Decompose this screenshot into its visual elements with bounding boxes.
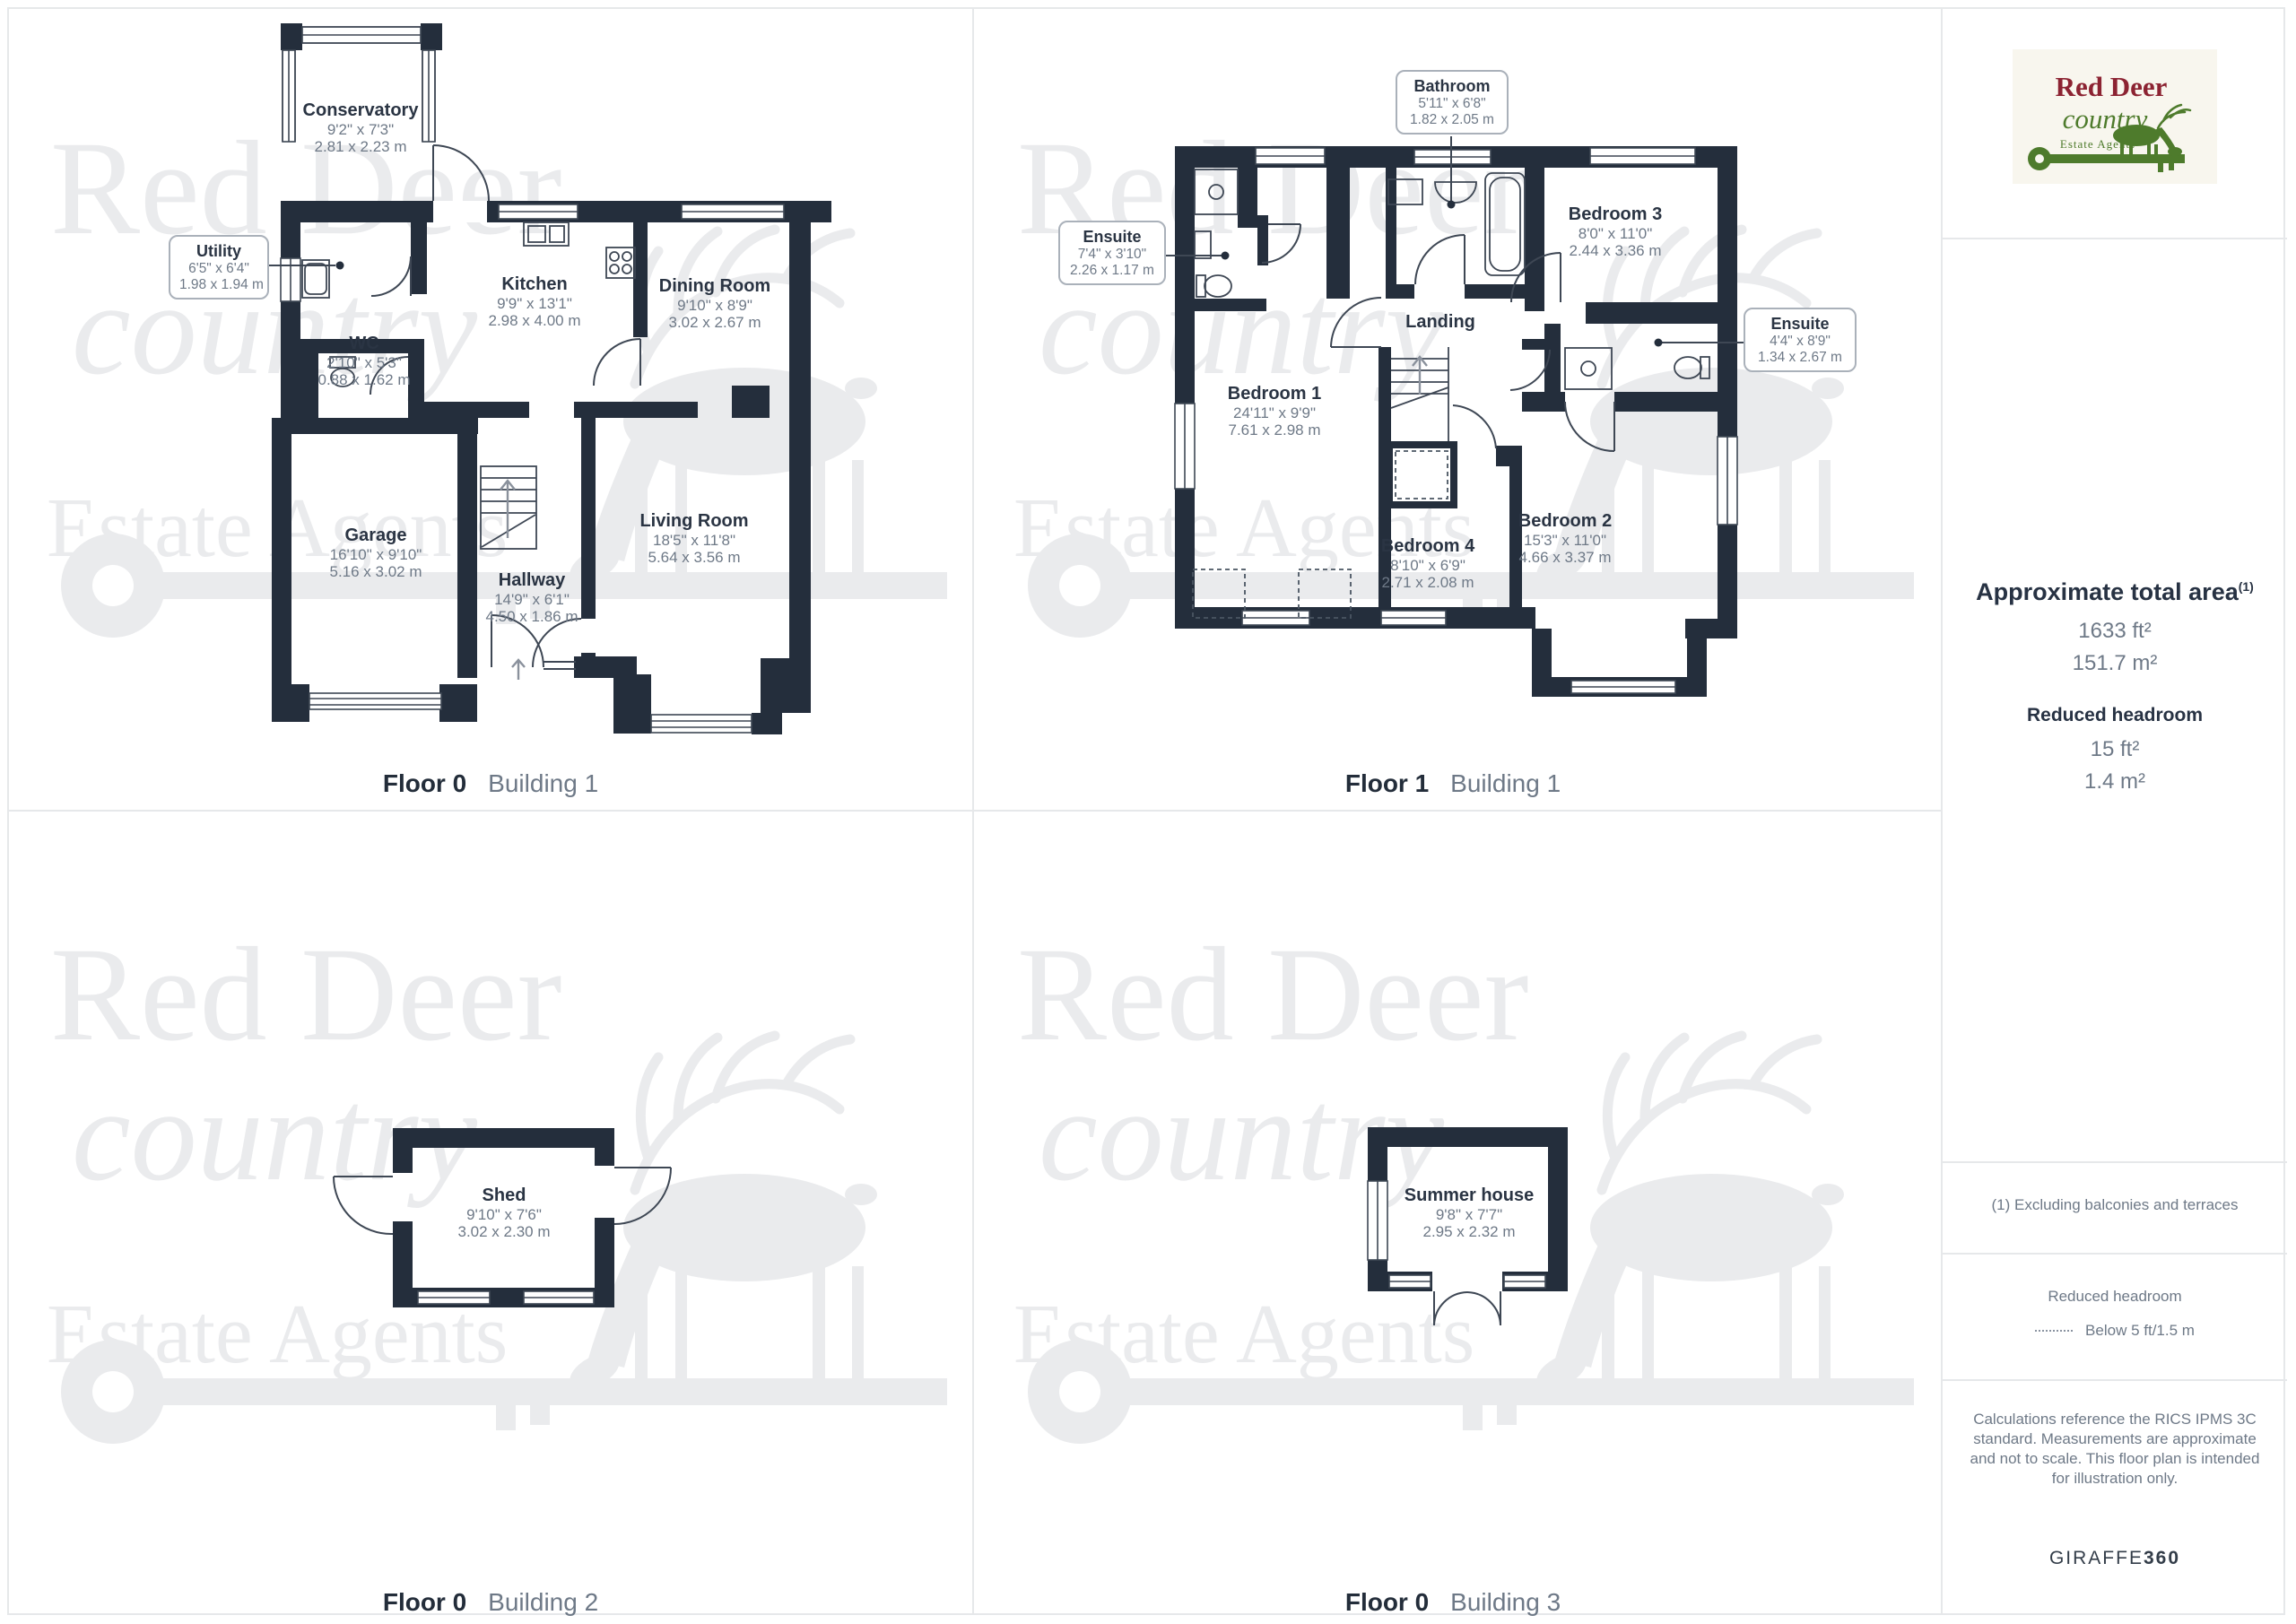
total-area-title-text: Approximate total area: [1976, 578, 2239, 605]
room-dim-metric: 4.66 x 3.37 m: [1518, 549, 1612, 566]
room-dim-imperial: 15'3" x 11'0": [1518, 532, 1612, 549]
caption-building: Building 1: [488, 769, 598, 798]
reduced-headroom-title: Reduced headroom: [1943, 705, 2287, 726]
room-name: Living Room: [639, 511, 748, 532]
room-label-wc: WC 2'10" x 5'3" 0.88 x 1.62 m: [317, 334, 410, 388]
caption-building: Building 1: [1450, 769, 1561, 798]
room-dim-imperial: 16'10" x 9'10": [329, 546, 422, 563]
room-dim-metric: 5.64 x 3.56 m: [639, 549, 748, 566]
room-label-hallway: Hallway 14'9" x 6'1" 4.50 x 1.86 m: [485, 570, 578, 625]
room-dim-imperial: 2'10" x 5'3": [317, 354, 410, 371]
room-dim-imperial: 9'10" x 8'9": [659, 297, 770, 314]
room-dim-metric: 2.81 x 2.23 m: [303, 138, 419, 155]
legend-row: Below 5 ft/1.5 m: [1943, 1322, 2287, 1340]
callout-ensuite-2: Ensuite 4'4" x 8'9" 1.34 x 2.67 m: [1744, 308, 1857, 372]
room-dim-metric: 2.95 x 2.32 m: [1405, 1223, 1534, 1240]
room-name: Bathroom: [1406, 76, 1498, 96]
sidebar-divider-2: [1943, 1161, 2287, 1163]
room-name: Utility: [179, 241, 258, 261]
legend-title: Reduced headroom: [1943, 1288, 2287, 1306]
room-name: Dining Room: [659, 276, 770, 297]
callout-ensuite-1: Ensuite 7'4" x 3'10" 2.26 x 1.17 m: [1058, 221, 1166, 285]
total-area-title: Approximate total area(1): [1943, 578, 2287, 606]
room-dim-metric: 5.16 x 3.02 m: [329, 563, 422, 580]
room-name: Bedroom 2: [1518, 511, 1612, 532]
room-dim-imperial: 5'11" x 6'8": [1406, 96, 1498, 112]
room-name: Ensuite: [1754, 314, 1846, 334]
room-name: Landing: [1405, 312, 1475, 333]
room-label-shed: Shed 9'10" x 7'6" 3.02 x 2.30 m: [457, 1185, 550, 1240]
room-name: Kitchen: [488, 274, 580, 295]
room-dim-metric: 2.98 x 4.00 m: [488, 312, 580, 329]
floorplan-page: Red Deer country Estate Agents: [0, 0, 2296, 1624]
room-dim-metric: 1.98 x 1.94 m: [179, 277, 258, 293]
room-dim-metric: 0.88 x 1.62 m: [317, 371, 410, 388]
caption-floor1-building1: Floor 1 Building 1: [1345, 769, 1561, 798]
room-dim-imperial: 14'9" x 6'1": [485, 591, 578, 608]
logo-key-icon: [2028, 147, 2185, 172]
sidebar-divider-4: [1943, 1379, 2287, 1381]
room-name: Ensuite: [1069, 227, 1155, 247]
room-dim-imperial: 9'8" x 7'7": [1405, 1206, 1534, 1223]
room-name: Summer house: [1405, 1185, 1534, 1206]
room-dim-metric: 2.26 x 1.17 m: [1069, 263, 1155, 279]
room-dim-imperial: 9'2" x 7'3": [303, 121, 419, 138]
room-name: Conservatory: [303, 100, 419, 121]
room-name: Bedroom 1: [1228, 384, 1321, 404]
caption-floor: Floor 0: [383, 769, 466, 798]
room-dim-metric: 1.34 x 2.67 m: [1754, 350, 1846, 366]
brand-name: GIRAFFE: [2049, 1548, 2144, 1568]
room-name: Shed: [457, 1185, 550, 1206]
room-dim-imperial: 8'10" x 6'9": [1381, 557, 1474, 574]
logo-text-red-deer: Red Deer: [2056, 71, 2168, 102]
room-dim-metric: 2.44 x 3.36 m: [1569, 242, 1662, 259]
caption-building: Building 3: [1450, 1588, 1561, 1617]
caption-floor0-building3: Floor 0 Building 3: [1345, 1588, 1561, 1617]
footnote: (1) Excluding balconies and terraces: [1943, 1196, 2287, 1214]
room-dim-imperial: 7'4" x 3'10": [1069, 247, 1155, 263]
room-dim-metric: 1.82 x 2.05 m: [1406, 112, 1498, 128]
caption-floor: Floor 0: [1345, 1588, 1429, 1617]
callout-utility: Utility 6'5" x 6'4" 1.98 x 1.94 m: [169, 235, 269, 300]
sidebar: Red Deer country Estate Agents: [1943, 7, 2287, 1615]
room-name: Garage: [329, 525, 422, 546]
room-dim-imperial: 4'4" x 8'9": [1754, 334, 1846, 350]
sidebar-divider-1: [1943, 238, 2287, 239]
room-label-living-room: Living Room 18'5" x 11'8" 5.64 x 3.56 m: [639, 511, 748, 566]
room-label-bedroom-2: Bedroom 2 15'3" x 11'0" 4.66 x 3.37 m: [1518, 511, 1612, 566]
total-area-superscript: (1): [2239, 579, 2254, 594]
reduced-headroom-metric: 1.4 m²: [1943, 769, 2287, 795]
room-label-dining-room: Dining Room 9'10" x 8'9" 3.02 x 2.67 m: [659, 276, 770, 331]
room-label-conservatory: Conservatory 9'2" x 7'3" 2.81 x 2.23 m: [303, 100, 419, 155]
room-dim-metric: 4.50 x 1.86 m: [485, 608, 578, 625]
room-dim-imperial: 9'9" x 13'1": [488, 295, 580, 312]
brand-number: 360: [2144, 1548, 2180, 1568]
room-label-bedroom-4: Bedroom 4 8'10" x 6'9" 2.71 x 2.08 m: [1381, 536, 1474, 591]
total-area-imperial: 1633 ft²: [1943, 619, 2287, 644]
room-dim-metric: 7.61 x 2.98 m: [1228, 421, 1321, 439]
divider-horizontal-center: [7, 810, 1943, 812]
caption-floor0-building1: Floor 0 Building 1: [383, 769, 598, 798]
room-dim-imperial: 18'5" x 11'8": [639, 532, 748, 549]
total-area-metric: 151.7 m²: [1943, 651, 2287, 676]
room-dim-imperial: 24'11" x 9'9": [1228, 404, 1321, 421]
room-dim-imperial: 9'10" x 7'6": [457, 1206, 550, 1223]
room-label-kitchen: Kitchen 9'9" x 13'1" 2.98 x 4.00 m: [488, 274, 580, 329]
room-dim-imperial: 8'0" x 11'0": [1569, 225, 1662, 242]
giraffe360-brand: GIRAFFE360: [1943, 1548, 2287, 1569]
room-label-summer-house: Summer house 9'8" x 7'7" 2.95 x 2.32 m: [1405, 1185, 1534, 1240]
caption-floor0-building2: Floor 0 Building 2: [383, 1588, 598, 1617]
room-label-landing: Landing: [1405, 312, 1475, 333]
room-label-garage: Garage 16'10" x 9'10" 5.16 x 3.02 m: [329, 525, 422, 580]
room-name: Bedroom 4: [1381, 536, 1474, 557]
room-name: WC: [317, 334, 410, 354]
caption-floor: Floor 1: [1345, 769, 1429, 798]
room-label-bedroom-3: Bedroom 3 8'0" x 11'0" 2.44 x 3.36 m: [1569, 204, 1662, 259]
agency-logo-graphic: Red Deer country Estate Agents: [2013, 49, 2217, 184]
agency-logo: Red Deer country Estate Agents: [2013, 49, 2217, 184]
room-name: Bedroom 3: [1569, 204, 1662, 225]
room-dim-imperial: 6'5" x 6'4": [179, 261, 258, 277]
legend-label: Below 5 ft/1.5 m: [2085, 1322, 2195, 1340]
caption-building: Building 2: [488, 1588, 598, 1617]
room-dim-metric: 3.02 x 2.67 m: [659, 314, 770, 331]
room-dim-metric: 2.71 x 2.08 m: [1381, 574, 1474, 591]
room-label-bedroom-1: Bedroom 1 24'11" x 9'9" 7.61 x 2.98 m: [1228, 384, 1321, 439]
disclaimer: Calculations reference the RICS IPMS 3C …: [1967, 1410, 2263, 1489]
sidebar-divider-3: [1943, 1253, 2287, 1255]
reduced-headroom-imperial: 15 ft²: [1943, 737, 2287, 762]
dotted-line-icon: [2035, 1330, 2073, 1332]
caption-floor: Floor 0: [383, 1588, 466, 1617]
room-name: Hallway: [485, 570, 578, 591]
room-dim-metric: 3.02 x 2.30 m: [457, 1223, 550, 1240]
callout-bathroom: Bathroom 5'11" x 6'8" 1.82 x 2.05 m: [1396, 70, 1509, 135]
